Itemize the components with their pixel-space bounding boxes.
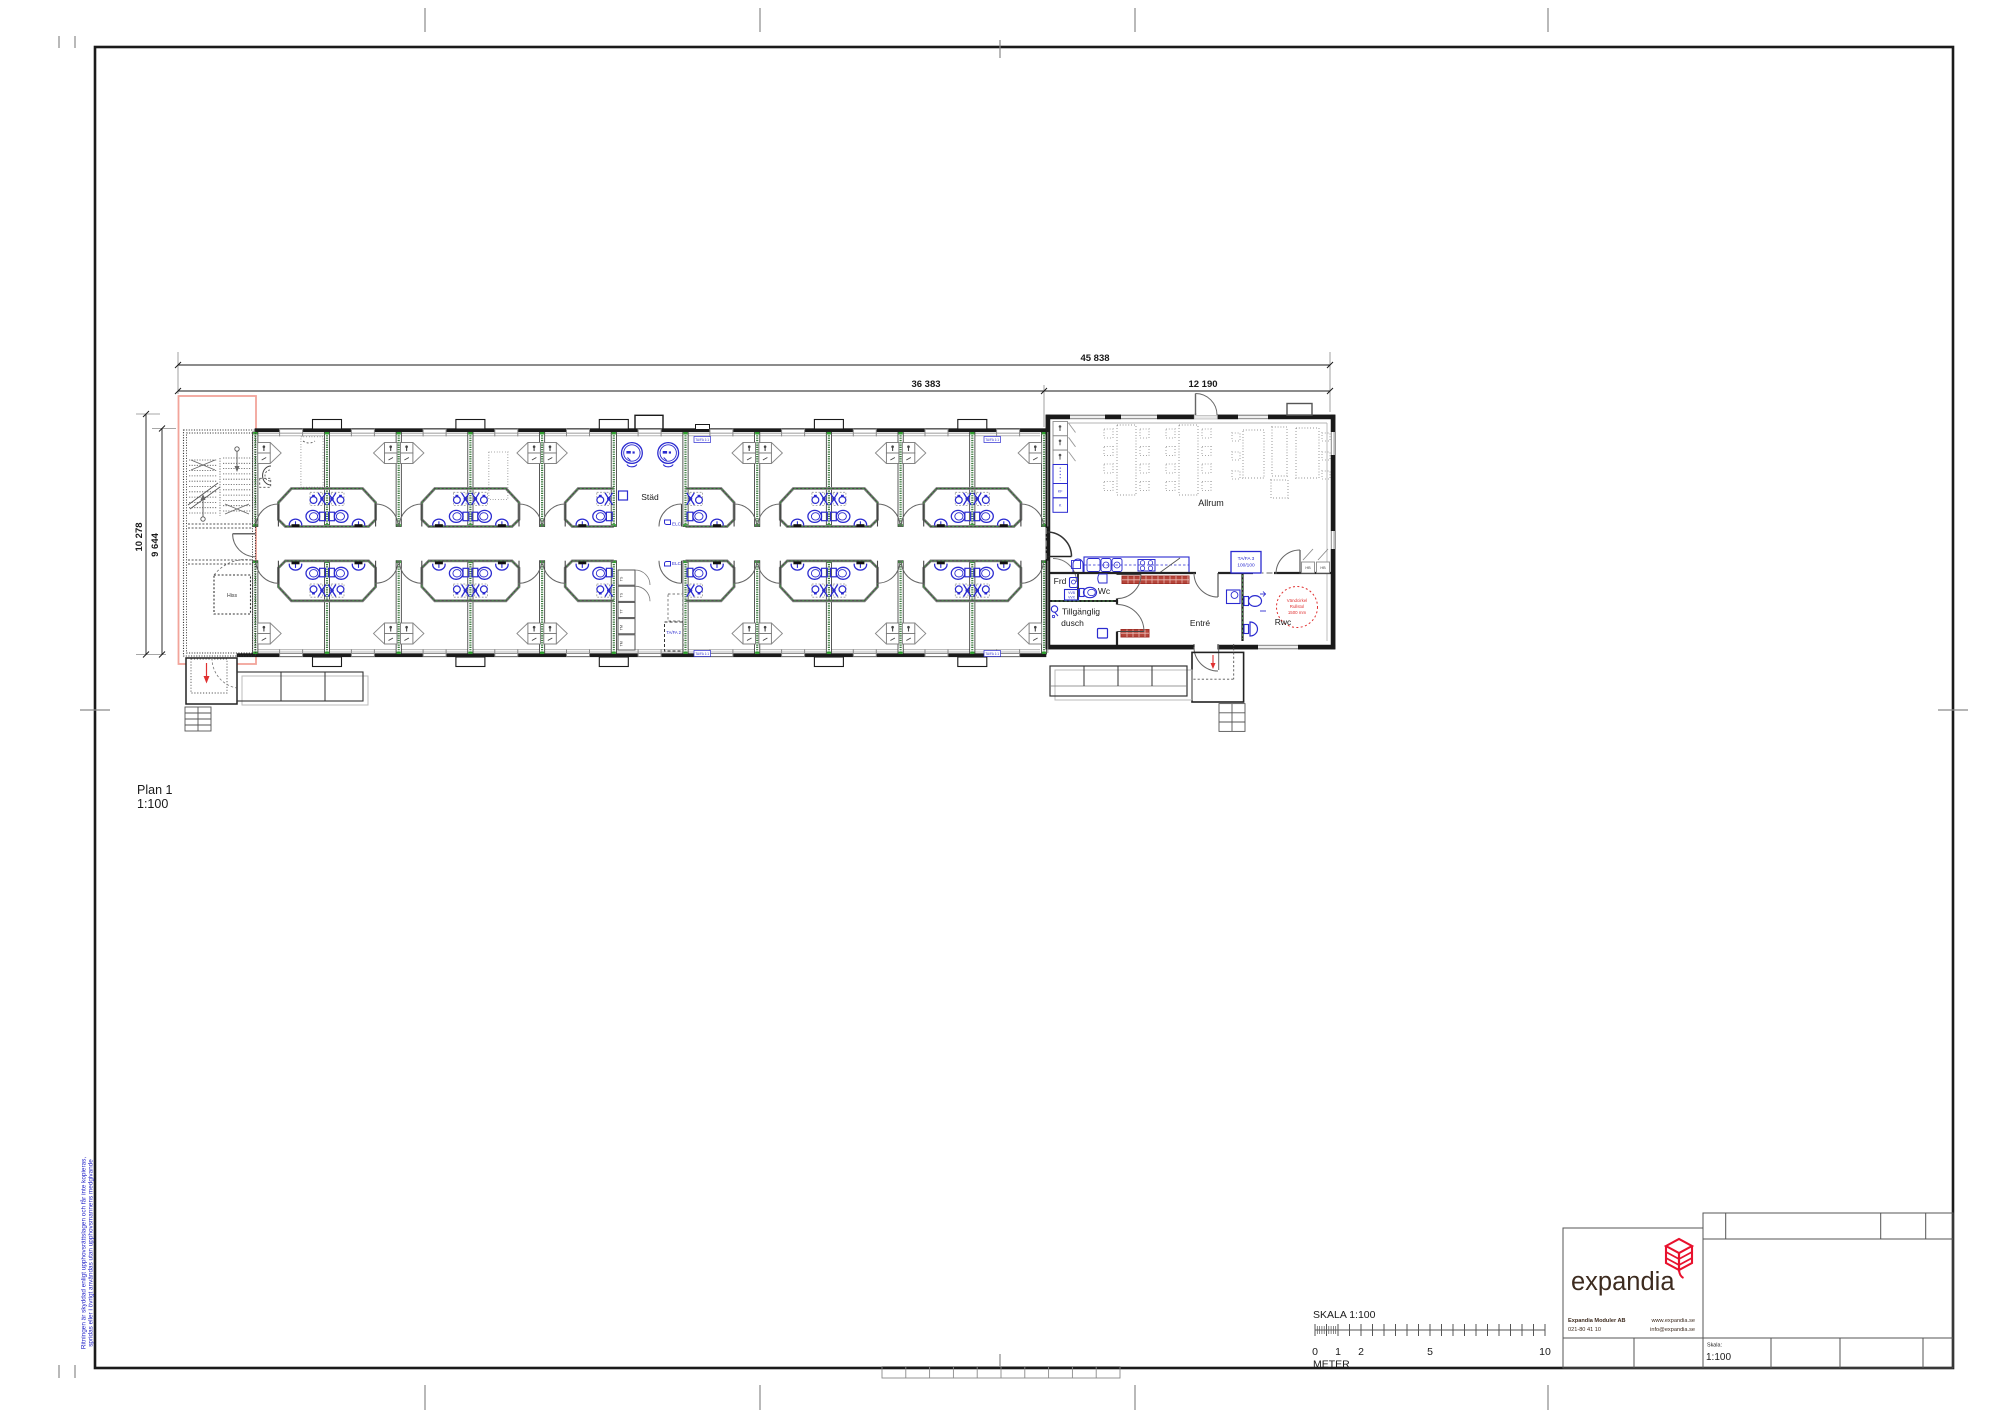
svg-text:www.expandia.se: www.expandia.se: [1650, 1318, 1695, 1324]
svg-text:Ritningen är skyddad enligt up: Ritningen är skyddad enligt upphovsrätts…: [80, 1157, 88, 1349]
svg-text:TA/FA 2: TA/FA 2: [666, 630, 681, 635]
svg-text:021-80 41 10: 021-80 41 10: [1568, 1327, 1601, 1333]
svg-text:12 190: 12 190: [1188, 379, 1217, 390]
svg-text:Entré: Entré: [1190, 618, 1211, 628]
svg-text:Expandia Moduler AB: Expandia Moduler AB: [1568, 1318, 1626, 1324]
svg-text:Städ: Städ: [641, 492, 659, 502]
svg-text:TA/FA 1:1: TA/FA 1:1: [985, 438, 999, 442]
svg-text:METER: METER: [1313, 1359, 1350, 1371]
svg-text:HB: HB: [1305, 566, 1311, 570]
svg-text:ELC: ELC: [672, 561, 682, 566]
svg-text:100/100: 100/100: [1237, 563, 1255, 569]
svg-text:expandia: expandia: [1571, 1268, 1675, 1296]
svg-text:ELC: ELC: [672, 522, 682, 527]
svg-text:TM: TM: [620, 641, 624, 646]
svg-text:2: 2: [1358, 1346, 1364, 1358]
svg-text:dusch: dusch: [1061, 618, 1084, 628]
svg-text:VVX: VVX: [1068, 595, 1076, 599]
svg-text:TA/FA 1:1: TA/FA 1:1: [985, 652, 999, 656]
svg-text:1: 1: [1335, 1346, 1341, 1358]
svg-text:HB: HB: [1320, 566, 1326, 570]
svg-text:Frd: Frd: [1054, 576, 1067, 586]
svg-text:1:100: 1:100: [137, 797, 168, 811]
svg-text:Wc: Wc: [1098, 586, 1111, 596]
svg-text:TA/FA 3: TA/FA 3: [1238, 556, 1255, 562]
svg-text:1500 mm: 1500 mm: [1288, 610, 1307, 615]
svg-text:SKALA 1:100: SKALA 1:100: [1313, 1309, 1376, 1321]
svg-text:5: 5: [1427, 1346, 1433, 1358]
svg-text:TA/FA 1:1: TA/FA 1:1: [695, 652, 709, 656]
svg-text:0: 0: [1312, 1346, 1318, 1358]
svg-text:Allrum: Allrum: [1198, 498, 1224, 508]
svg-text:1:100: 1:100: [1706, 1352, 1731, 1363]
svg-text:Rullstol: Rullstol: [1290, 604, 1304, 609]
svg-text:Plan 1: Plan 1: [137, 783, 172, 797]
svg-text:Skala:: Skala:: [1707, 1343, 1722, 1349]
svg-text:TM: TM: [620, 625, 624, 630]
svg-text:Vändcirkel: Vändcirkel: [1287, 598, 1308, 603]
svg-text:info@expandia.se: info@expandia.se: [1650, 1327, 1695, 1333]
svg-text:10 278: 10 278: [134, 522, 145, 551]
svg-text:TS: TS: [620, 576, 624, 581]
svg-text:Hiss: Hiss: [227, 593, 237, 599]
svg-text:spridas eller i övrigt använda: spridas eller i övrigt användas utan upp…: [88, 1159, 95, 1347]
svg-text:36 383: 36 383: [911, 379, 940, 390]
svg-text:TS: TS: [620, 592, 624, 597]
svg-text:45 838: 45 838: [1080, 353, 1109, 364]
svg-text:Tillgänglig: Tillgänglig: [1062, 607, 1100, 617]
svg-text:KF: KF: [1058, 490, 1063, 494]
svg-text:TA/FA 1:1: TA/FA 1:1: [695, 438, 709, 442]
svg-text:Rwc: Rwc: [1275, 617, 1292, 627]
svg-text:10: 10: [1539, 1346, 1551, 1358]
svg-text:9 644: 9 644: [150, 532, 161, 556]
